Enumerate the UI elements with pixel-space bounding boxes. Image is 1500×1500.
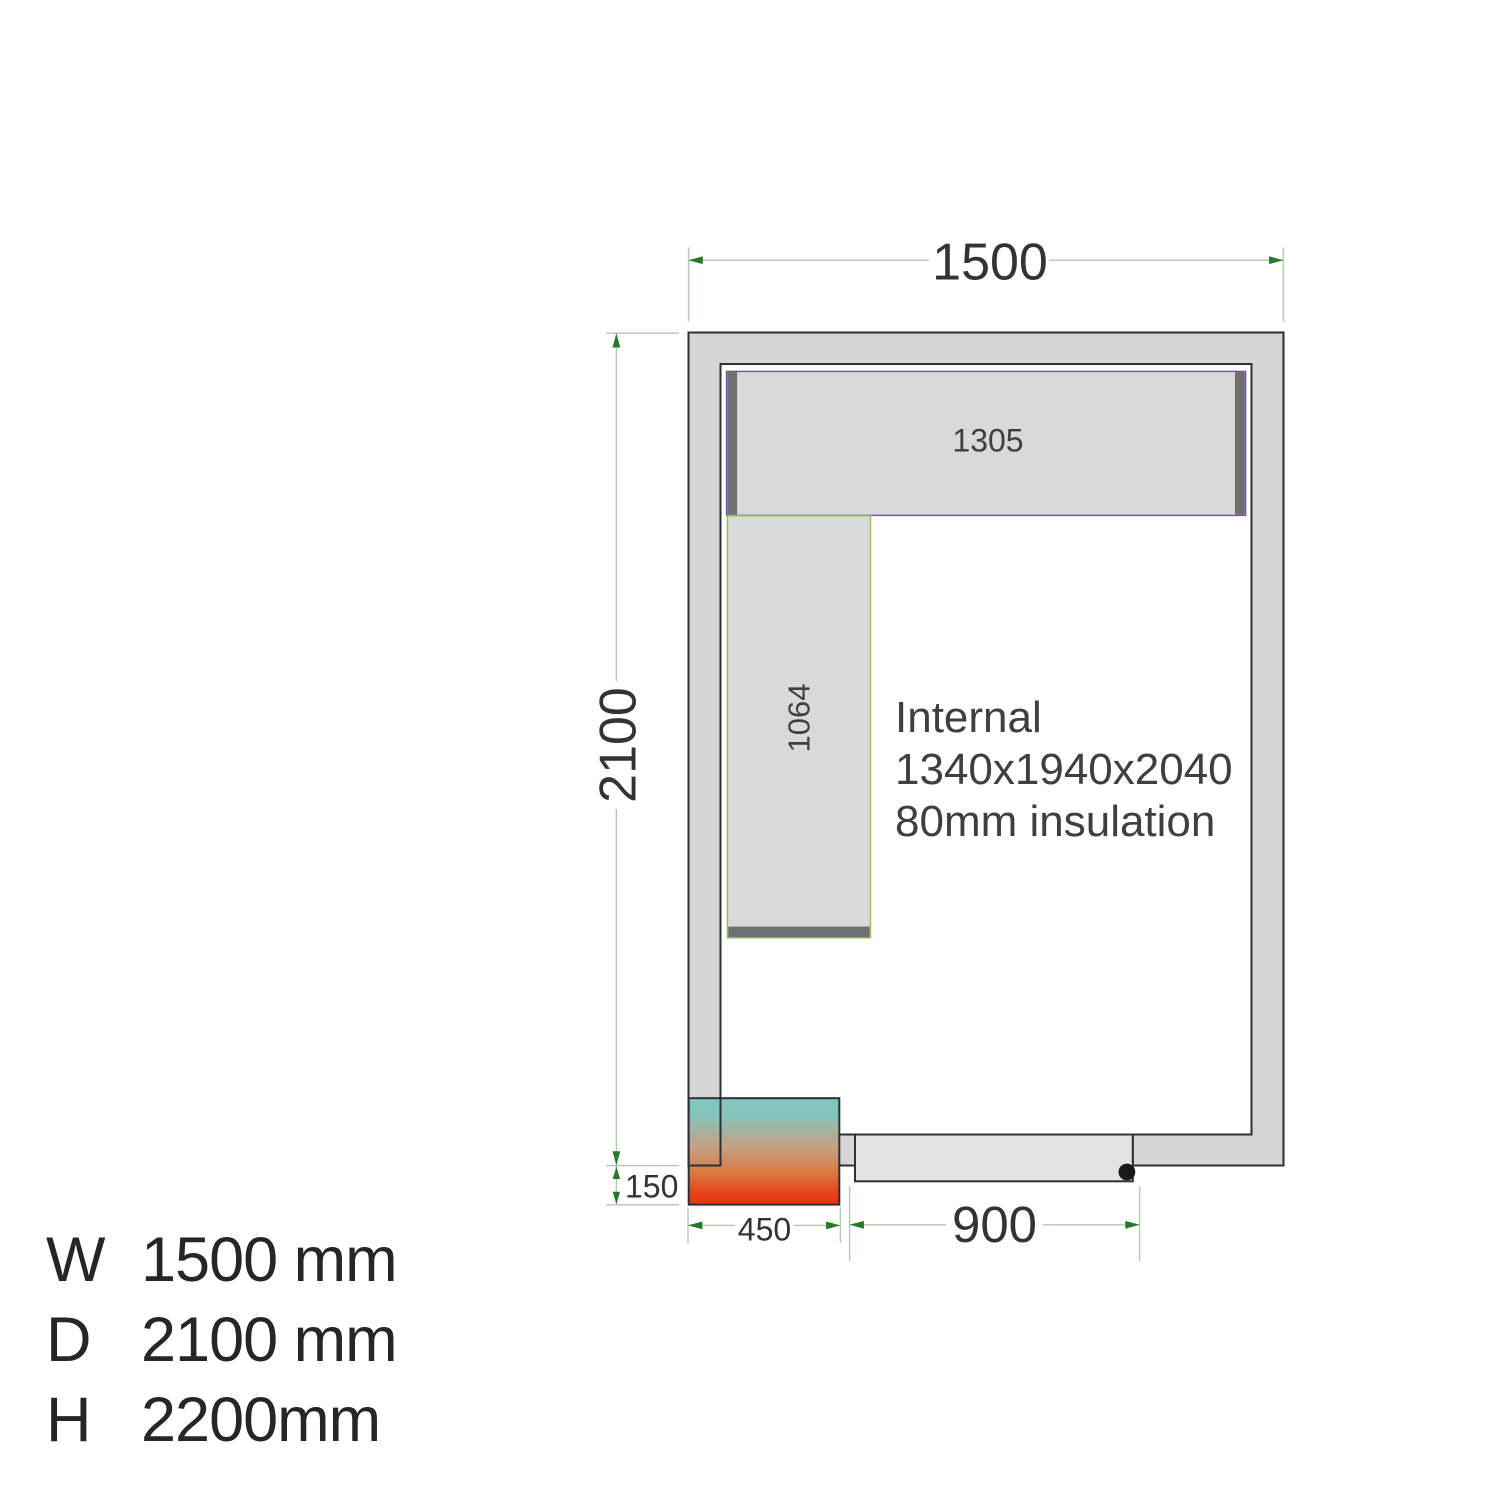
- svg-text:150: 150: [625, 1169, 678, 1205]
- svg-text:80mm insulation: 80mm insulation: [895, 797, 1215, 846]
- svg-text:1064: 1064: [782, 684, 817, 753]
- svg-text:Internal: Internal: [895, 693, 1042, 742]
- svg-text:W: W: [46, 1225, 106, 1295]
- svg-text:1500 mm: 1500 mm: [141, 1225, 397, 1295]
- svg-text:2100: 2100: [589, 687, 647, 803]
- svg-text:2100 mm: 2100 mm: [141, 1305, 397, 1375]
- svg-text:450: 450: [738, 1211, 791, 1247]
- svg-text:900: 900: [952, 1196, 1037, 1253]
- svg-text:1500: 1500: [932, 233, 1048, 291]
- svg-text:2200mm: 2200mm: [141, 1385, 380, 1455]
- svg-text:1305: 1305: [952, 423, 1023, 459]
- svg-text:H: H: [46, 1385, 91, 1455]
- svg-text:D: D: [46, 1305, 91, 1375]
- svg-text:1340x1940x2040: 1340x1940x2040: [895, 745, 1233, 794]
